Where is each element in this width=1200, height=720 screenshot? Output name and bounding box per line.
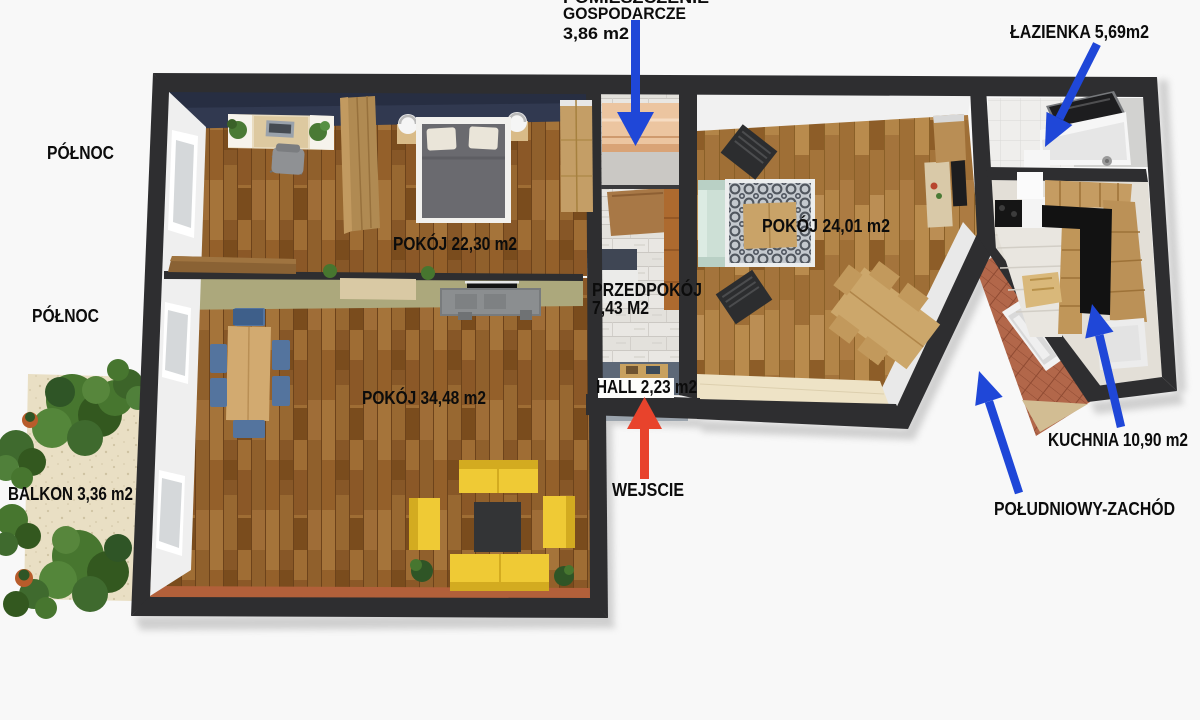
svg-text:POKÓJ 22,30 m2: POKÓJ 22,30 m2	[393, 233, 517, 254]
svg-text:ŁAZIENKA 5,69m2: ŁAZIENKA 5,69m2	[1010, 22, 1149, 42]
svg-text:POKÓJ 24,01 m2: POKÓJ 24,01 m2	[762, 215, 890, 236]
svg-text:GOSPODARCZE: GOSPODARCZE	[563, 4, 686, 23]
svg-text:POKÓJ 34,48 m2: POKÓJ 34,48 m2	[362, 387, 486, 408]
svg-text:BALKON 3,36 m2: BALKON 3,36 m2	[8, 484, 133, 504]
svg-text:WEJSCIE: WEJSCIE	[612, 480, 684, 500]
svg-text:PÓŁNOC: PÓŁNOC	[32, 305, 99, 326]
svg-text:POŁUDNIOWY-ZACHÓD: POŁUDNIOWY-ZACHÓD	[994, 498, 1175, 519]
svg-text:3,86 m2: 3,86 m2	[563, 24, 629, 43]
svg-text:PÓŁNOC: PÓŁNOC	[47, 142, 114, 163]
svg-text:PRZEDPOKÓJ: PRZEDPOKÓJ	[592, 279, 702, 300]
svg-text:KUCHNIA 10,90 m2: KUCHNIA 10,90 m2	[1048, 430, 1188, 450]
svg-text:7,43 M2: 7,43 M2	[592, 298, 649, 318]
svg-text:HALL 2,23 m2: HALL 2,23 m2	[596, 377, 697, 397]
